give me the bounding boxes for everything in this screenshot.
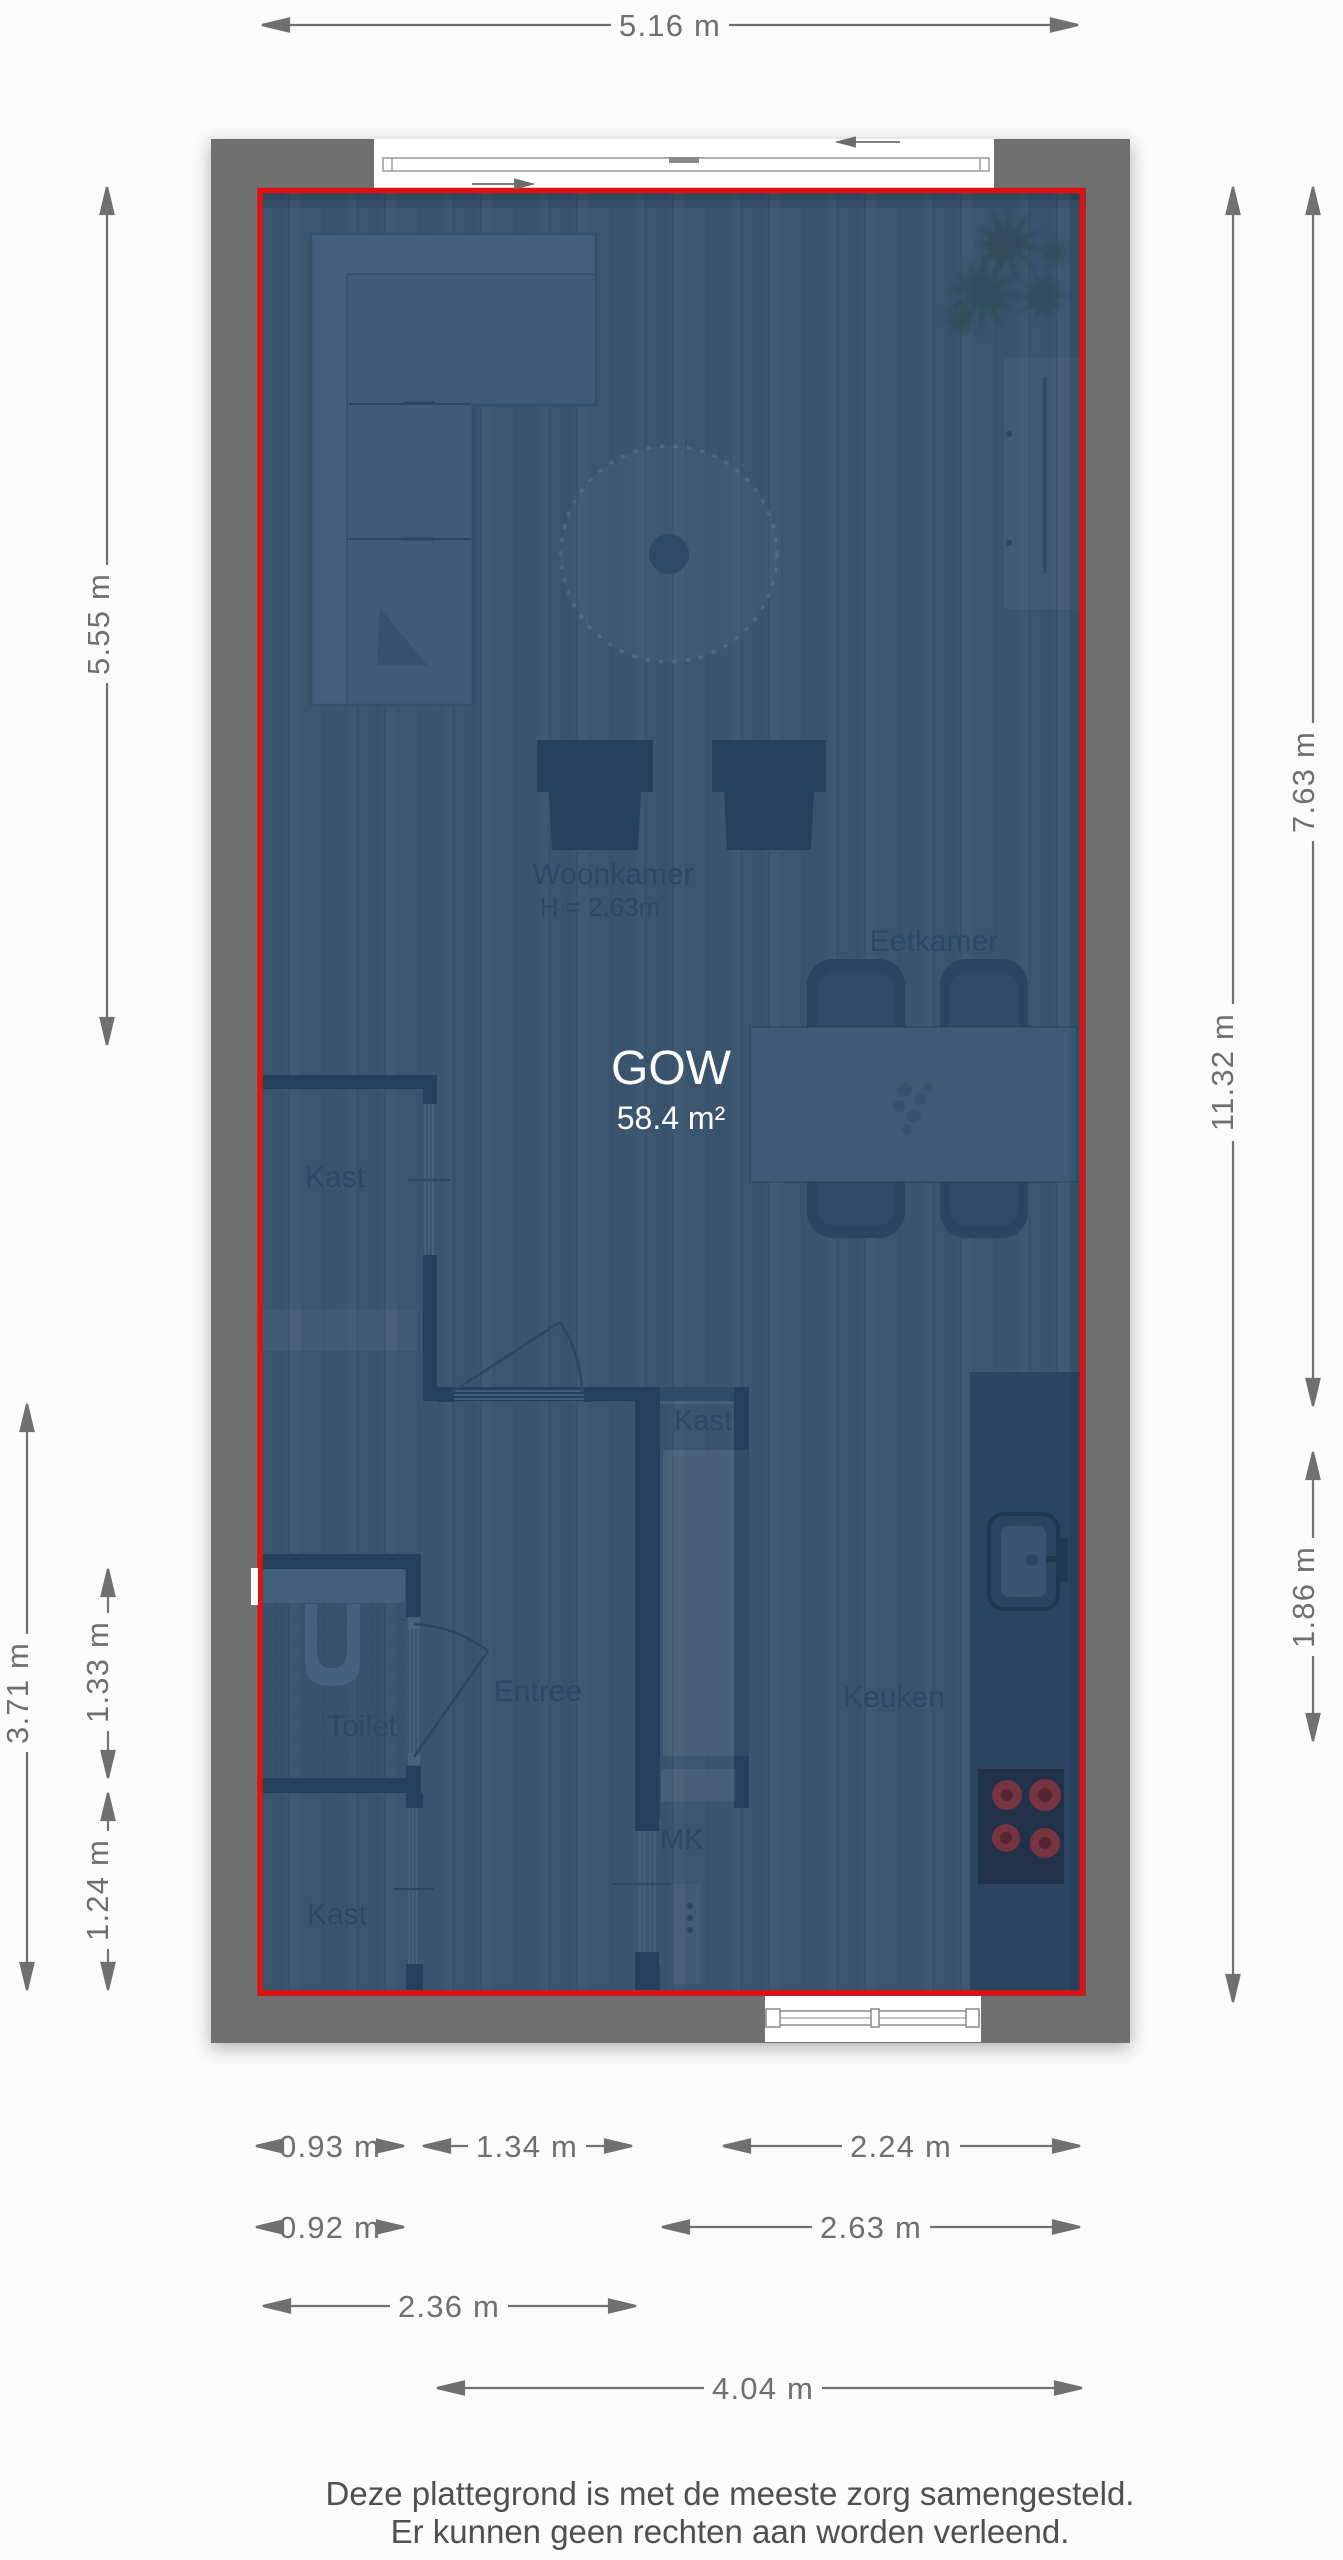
svg-text:2.24 m: 2.24 m xyxy=(850,2129,952,2164)
svg-text:Deze plattegrond is met de mee: Deze plattegrond is met de meeste zorg s… xyxy=(326,2475,1135,2512)
svg-text:7.63 m: 7.63 m xyxy=(1286,731,1321,833)
svg-text:Eetkamer: Eetkamer xyxy=(870,925,998,958)
svg-text:1.34 m: 1.34 m xyxy=(476,2129,578,2164)
svg-text:Kast: Kast xyxy=(674,1405,732,1437)
svg-text:Er kunnen geen rechten aan wor: Er kunnen geen rechten aan worden verlee… xyxy=(391,2513,1070,2550)
svg-text:3.71 m: 3.71 m xyxy=(0,1642,35,1744)
svg-text:Kast: Kast xyxy=(305,1161,366,1194)
svg-text:0.92 m: 0.92 m xyxy=(279,2210,381,2245)
svg-text:H = 2.63m: H = 2.63m xyxy=(540,892,661,922)
svg-text:Kast: Kast xyxy=(307,1898,368,1931)
svg-text:11.32 m: 11.32 m xyxy=(1205,1013,1240,1131)
svg-text:0.93 m: 0.93 m xyxy=(279,2129,381,2164)
svg-text:1.33 m: 1.33 m xyxy=(80,1621,115,1723)
svg-text:2.63 m: 2.63 m xyxy=(820,2210,922,2245)
svg-text:GOW: GOW xyxy=(611,1042,732,1095)
svg-text:5.55 m: 5.55 m xyxy=(81,573,116,675)
svg-text:58.4 m²: 58.4 m² xyxy=(617,1100,726,1136)
svg-text:Toilet: Toilet xyxy=(327,1710,398,1743)
svg-text:5.16 m: 5.16 m xyxy=(619,8,721,43)
svg-text:Woonkamer: Woonkamer xyxy=(532,858,693,891)
svg-text:4.04 m: 4.04 m xyxy=(712,2371,814,2406)
svg-text:1.24 m: 1.24 m xyxy=(80,1839,115,1941)
svg-text:2.36 m: 2.36 m xyxy=(398,2289,500,2324)
svg-text:MK: MK xyxy=(660,1824,704,1856)
svg-text:Keuken: Keuken xyxy=(843,1681,945,1714)
svg-text:Entree: Entree xyxy=(494,1675,582,1708)
svg-text:1.86 m: 1.86 m xyxy=(1286,1546,1321,1648)
